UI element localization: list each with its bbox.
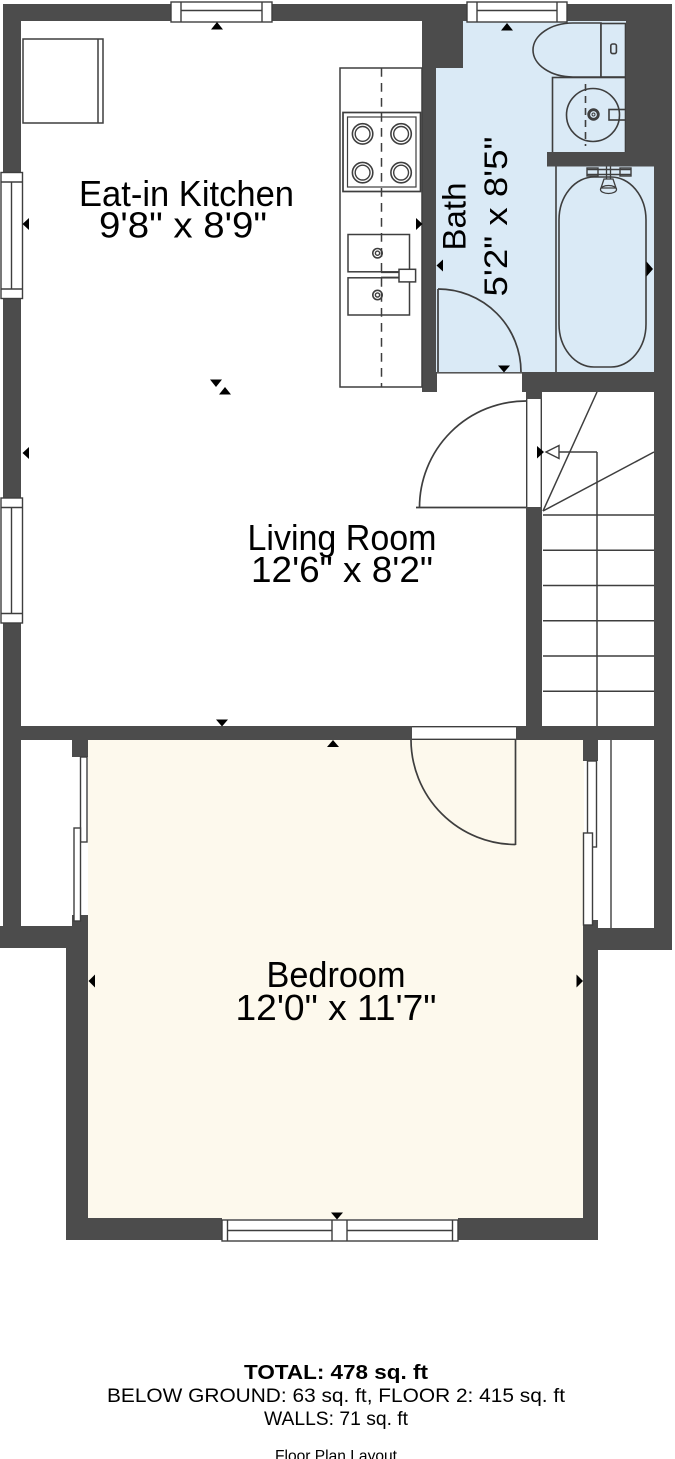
svg-text:WALLS: 71 sq. ft: WALLS: 71 sq. ft [264,1408,409,1430]
svg-text:Bath: Bath [437,183,473,251]
svg-text:Floor Plan Layout: Floor Plan Layout [275,1448,398,1459]
svg-text:5'2" x 8'5": 5'2" x 8'5" [478,137,514,297]
svg-text:12'0" x 11'7": 12'0" x 11'7" [236,987,437,1028]
svg-text:BELOW GROUND: 63 sq. ft, FLOOR: BELOW GROUND: 63 sq. ft, FLOOR 2: 415 sq… [107,1385,566,1407]
svg-text:TOTAL: 478 sq. ft: TOTAL: 478 sq. ft [244,1362,428,1384]
svg-text:9'8" x 8'9": 9'8" x 8'9" [99,205,267,246]
svg-text:12'6" x 8'2": 12'6" x 8'2" [251,549,433,590]
